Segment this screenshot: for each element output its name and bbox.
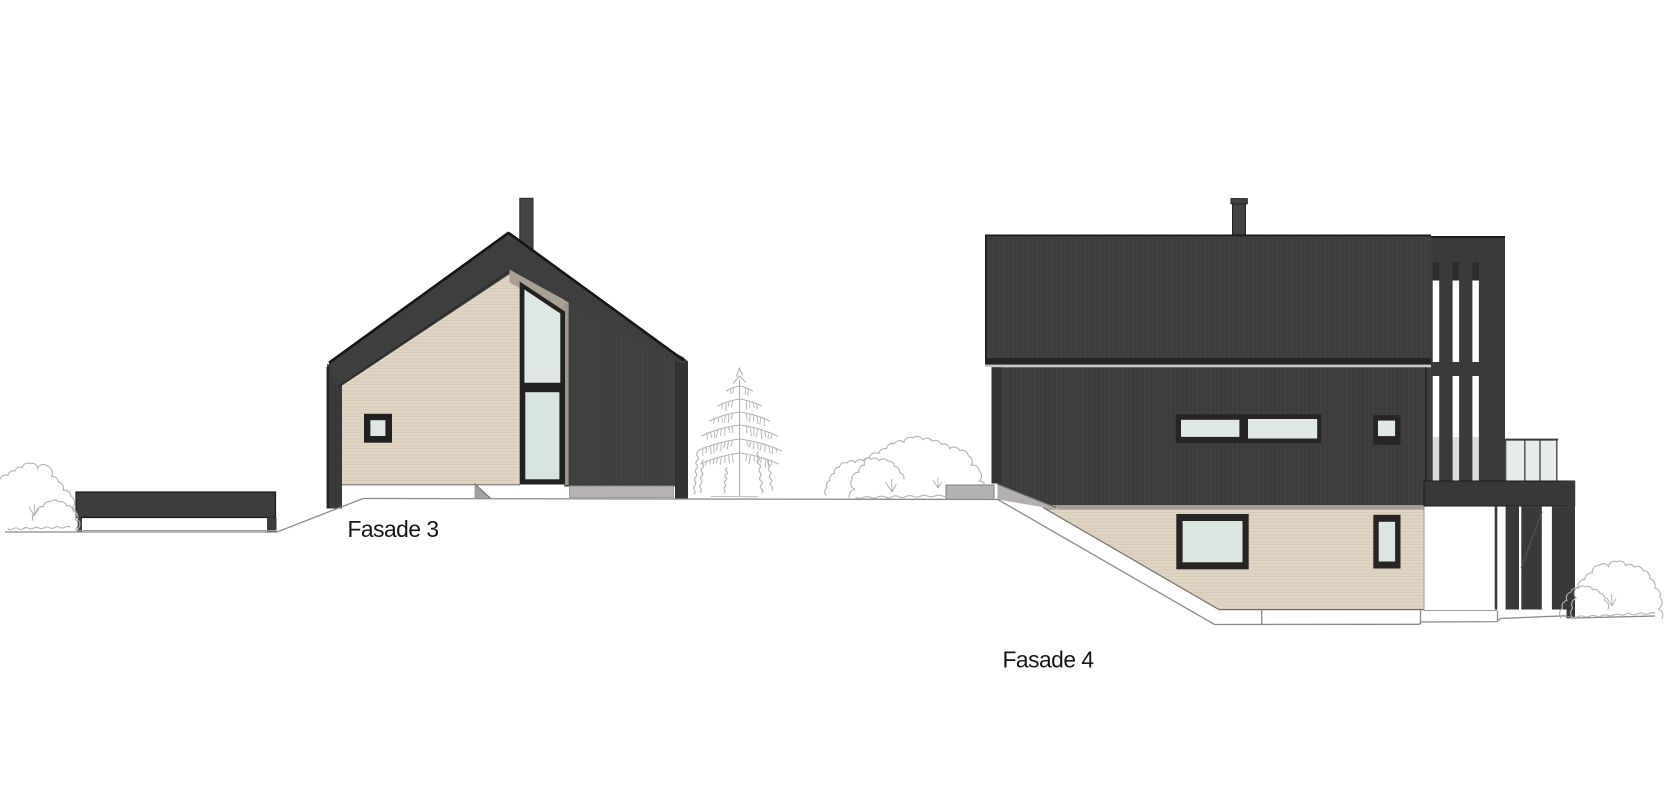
- svg-text:Fasade 4: Fasade 4: [1003, 647, 1095, 673]
- svg-text:Fasade 3: Fasade 3: [348, 516, 439, 542]
